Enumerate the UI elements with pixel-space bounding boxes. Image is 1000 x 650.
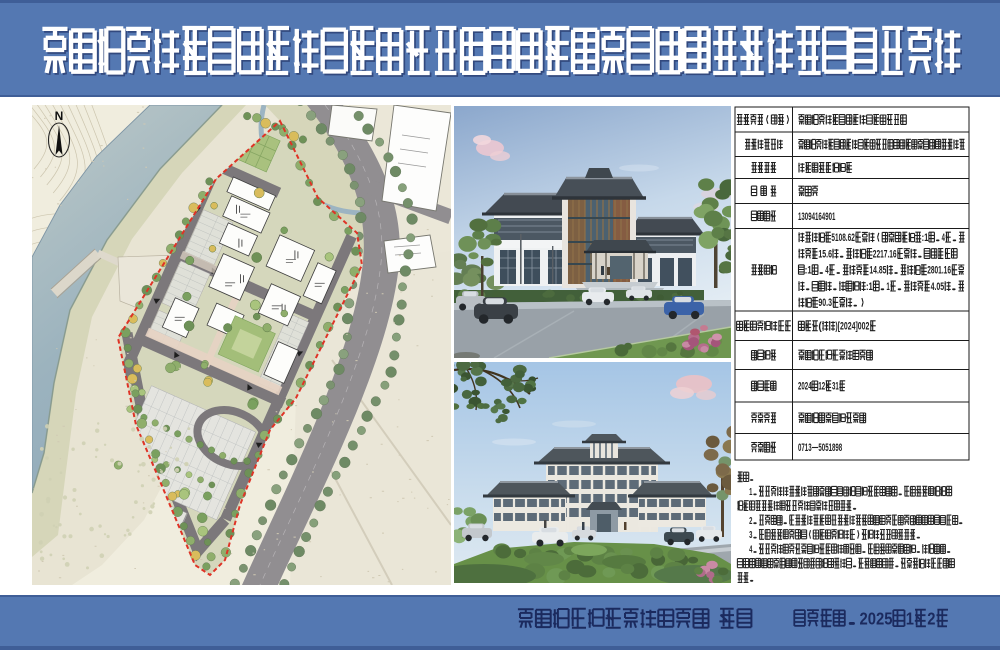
svg-text:90.3: 90.3 [818,297,832,309]
svg-text:3: 3 [749,530,752,541]
svg-text:0713: 0713 [798,442,812,454]
svg-text:15.6: 15.6 [818,248,832,260]
svg-text:4: 4 [825,265,828,277]
svg-text:2217.16: 2217.16 [873,248,897,260]
svg-text:4: 4 [942,232,945,244]
svg-text:1: 1 [886,281,889,293]
svg-text:)[2024]002: )[2024]002 [835,321,869,333]
svg-text:4.05: 4.05 [931,281,945,293]
svg-text:2: 2 [749,516,752,527]
svg-text::1: :1 [805,265,812,277]
svg-text:5051898: 5051898 [818,442,842,454]
svg-text:2024: 2024 [798,381,812,393]
svg-text::1: :1 [866,281,873,293]
svg-text:14.85: 14.85 [869,265,886,277]
svg-text:2801.16: 2801.16 [927,265,951,277]
svg-text:13094164901: 13094164901 [798,211,835,223]
svg-text:2: 2 [927,609,935,629]
svg-text:N: N [55,109,64,123]
svg-text:1: 1 [906,609,914,629]
svg-text:5108.62: 5108.62 [831,232,854,244]
svg-text:31: 31 [832,381,839,393]
svg-text::1: :1 [922,232,929,244]
svg-text:(: ( [818,321,822,333]
svg-text:1: 1 [749,487,752,498]
svg-text:12: 12 [818,381,825,393]
svg-text:4: 4 [749,545,752,556]
svg-text:2025: 2025 [860,609,893,629]
